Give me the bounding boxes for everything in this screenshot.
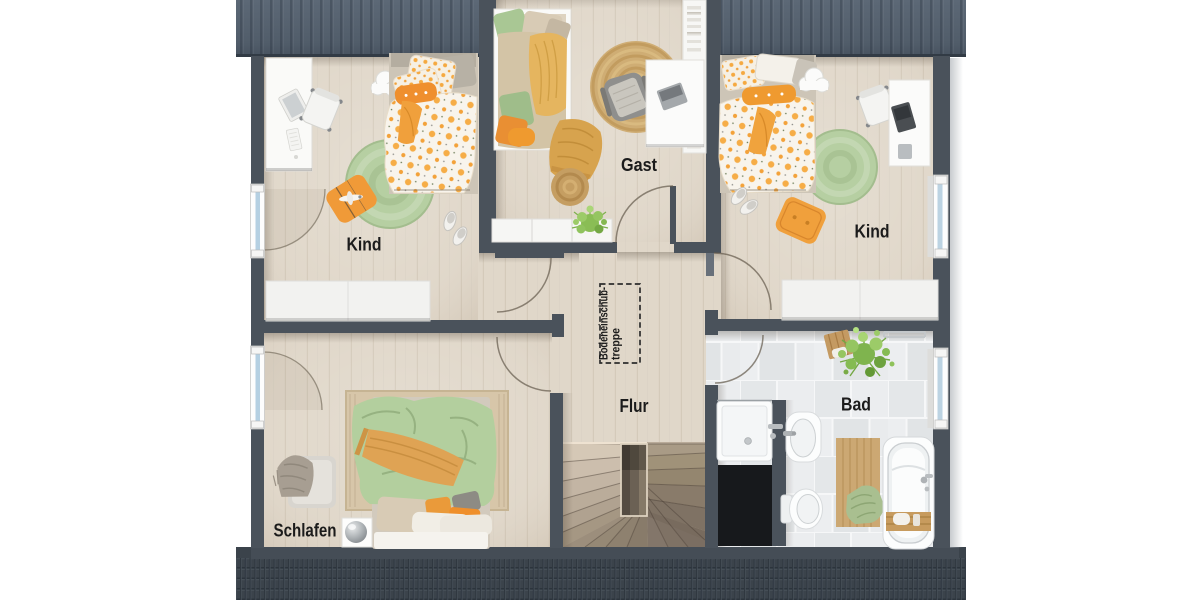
svg-text:Bad: Bad [841,395,871,415]
svg-text:Kind: Kind [855,222,890,242]
svg-text:treppe: treppe [609,328,623,360]
svg-text:Kind: Kind [347,235,382,255]
svg-text:Gast: Gast [621,155,657,175]
svg-text:Flur: Flur [620,396,649,416]
svg-text:Schlafen: Schlafen [274,521,337,541]
